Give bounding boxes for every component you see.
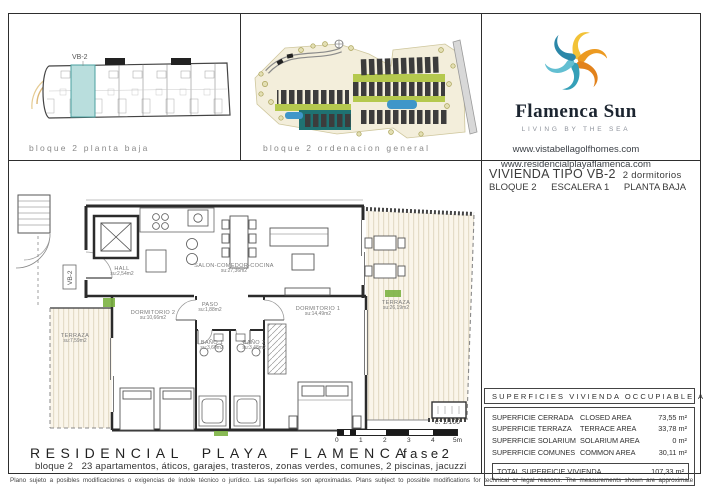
room-label-paso: PASOsu:1,88m2 xyxy=(198,302,221,314)
unit-bedrooms: 2 dormitorios xyxy=(623,170,682,181)
areas-table: SUPERFICIES VIVIENDA OCCUPIABLE AREA SUP… xyxy=(484,388,695,486)
flamenca-sun-logo-icon xyxy=(545,30,607,92)
scale-note: e: 1/100 xyxy=(390,419,460,426)
block-plan-drawing: VB-2 xyxy=(9,14,240,160)
panel-block-plan: VB-2 bloque 2 planta baja xyxy=(9,14,240,160)
areas-table-header: SUPERFICIES VIVIENDA OCCUPIABLE AREA xyxy=(484,388,695,404)
site-plan-drawing xyxy=(241,14,481,160)
room-label-dormitorio-1: DORMITORIO 1su:14,49m2 xyxy=(296,306,341,318)
room-label-bano-2: BAÑO 2su:3,48m2 xyxy=(242,340,265,352)
room-label-bano-1: BAÑO 1su:3,60m2 xyxy=(200,340,223,352)
unit-tag-label: VB-2 xyxy=(72,54,88,61)
project-phase: fase2 xyxy=(403,446,452,461)
project-title: RESIDENCIAL PLAYA FLAMENCA xyxy=(30,445,410,461)
unit-title: VIVIENDA TIPO VB-2 xyxy=(489,167,616,181)
table-row: SUPERFICIE SOLARIUMSOLARIUM AREA0 m² xyxy=(492,435,689,447)
unit-header: VIVIENDA TIPO VB-22 dormitorios BLOQUE 2… xyxy=(489,167,694,193)
highlighted-unit xyxy=(71,65,95,117)
scale-bar xyxy=(337,429,458,436)
table-row: SUPERFICIE COMUNESCOMMON AREA30,11 m² xyxy=(492,447,689,459)
table-row: SUPERFICIE CERRADACLOSED AREA73,55 m² xyxy=(492,412,689,424)
site-plan-caption: bloque 2 ordenacion general xyxy=(263,143,430,153)
brand-url-1[interactable]: www.vistabellagolfhomes.com xyxy=(482,143,670,158)
brand-block: Flamenca Sun LIVING BY THE SEA www.vista… xyxy=(482,30,670,172)
unit-floor: PLANTA BAJA xyxy=(624,182,686,193)
room-label-terraza-right: TERRAZAsu:26,19m2 xyxy=(382,300,410,312)
table-row: SUPERFICIE TERRAZATERRACE AREA33,78 m² xyxy=(492,423,689,435)
room-label-dormitorio-2: DORMITORIO 2su:10,66m2 xyxy=(131,310,176,322)
panel-site-plan: bloque 2 ordenacion general xyxy=(241,14,481,160)
floor-plan: VB-2 HALLsu:2,54m2 SALON-COMEDOR-COCINAs… xyxy=(8,190,481,442)
unit-stair: ESCALERA 1 xyxy=(551,182,609,193)
block-plan-caption: bloque 2 planta baja xyxy=(29,143,150,153)
disclaimer-text: Plano sujeto a posibles modificaciones o… xyxy=(10,477,702,484)
plan-unit-tag: VB-2 xyxy=(67,270,74,285)
project-subtitle: bloque 2 23 apartamentos, áticos, garaje… xyxy=(35,461,466,472)
room-label-salon: SALON-COMEDOR-COCINAsu:27,36m2 xyxy=(194,263,274,275)
room-label-hall: HALLsu:2,54m2 xyxy=(110,266,133,278)
brand-name: Flamenca Sun xyxy=(482,101,670,123)
unit-block: BLOQUE 2 xyxy=(489,182,537,193)
brand-tagline: LIVING BY THE SEA xyxy=(482,126,670,133)
room-label-terraza-left: TERRAZAsu:7,59m2 xyxy=(61,333,89,345)
floor-plan-drawing: VB-2 xyxy=(8,190,481,442)
plan-sheet: VB-2 bloque 2 planta baja xyxy=(0,0,705,498)
